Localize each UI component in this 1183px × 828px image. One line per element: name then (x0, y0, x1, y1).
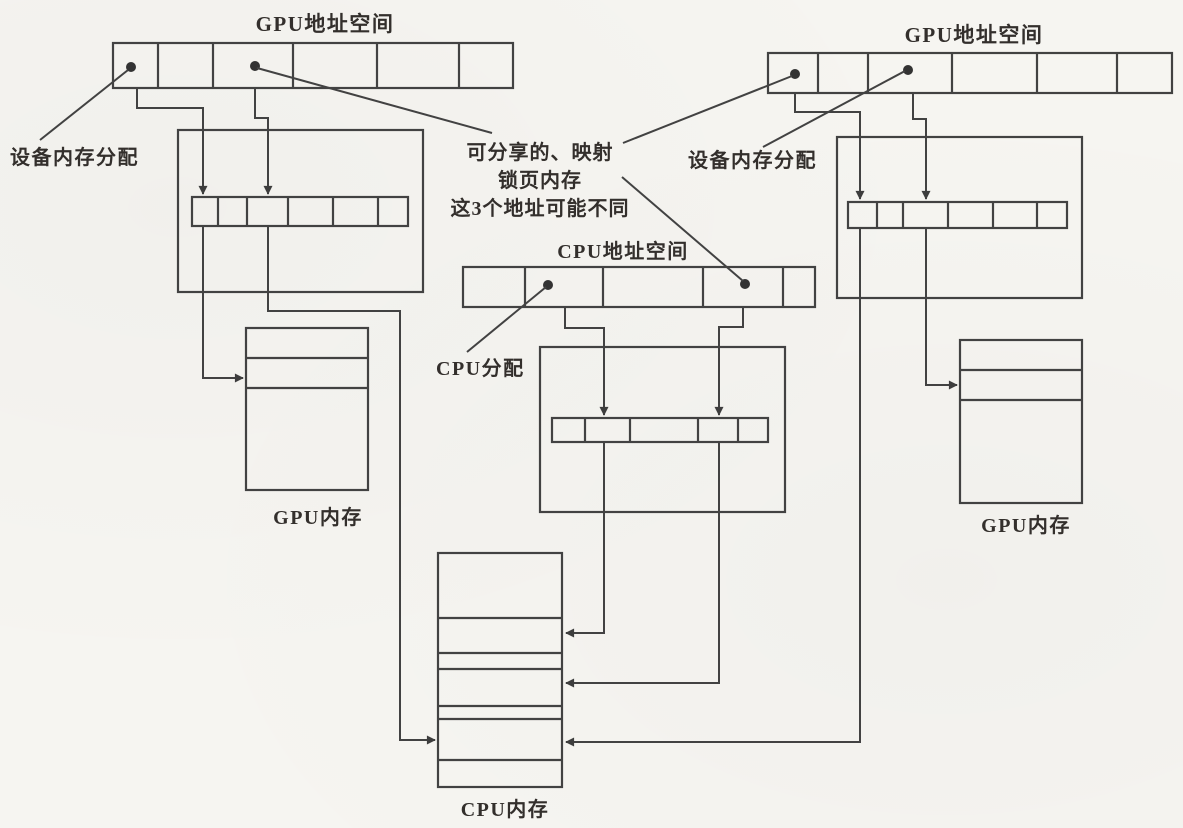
note-line-1: 可分享的、映射 (438, 139, 642, 167)
label-gpu-address-space-left: GPU地址空间 (250, 8, 400, 38)
connector-cpu-cell2-to-buffer (565, 307, 604, 415)
gpu-memory-box-right (960, 340, 1082, 503)
label-gpu-memory-right: GPU内存 (972, 509, 1080, 538)
mapping-box-left (178, 130, 423, 292)
connector-center-buffer-to-cpu-memory-row2 (566, 442, 604, 633)
label-pinned-memory-note: 可分享的、映射 锁页内存 这3个地址可能不同 (438, 139, 642, 223)
mapping-box-center (540, 347, 785, 512)
note-line-3: 这3个地址可能不同 (438, 195, 642, 223)
cpu-memory-box (438, 553, 562, 787)
buffer-bar-left (192, 197, 408, 226)
connector-left-buffer-to-gpu-memory (203, 226, 243, 378)
mapping-box-right (837, 137, 1082, 298)
cpu-address-space-bar (463, 267, 815, 307)
connector-right-cell3-to-buffer (913, 93, 926, 199)
connector-cpu-cell4-to-buffer (719, 307, 743, 415)
connector-left-buffer-to-cpu-memory (268, 226, 435, 740)
label-gpu-address-space-right: GPU地址空间 (899, 19, 1049, 49)
gpu-address-space-bar-right (768, 53, 1172, 93)
gpu-address-space-bar-left (113, 43, 513, 88)
buffer-bar-center (552, 418, 768, 442)
connector-center-buffer-to-cpu-memory-row4 (566, 442, 719, 683)
label-device-memory-allocation-right: 设备内存分配 (688, 144, 838, 173)
label-cpu-address-space: CPU地址空间 (548, 235, 698, 264)
label-cpu-memory: CPU内存 (451, 793, 559, 822)
label-gpu-memory-left: GPU内存 (264, 501, 372, 530)
gpu-memory-box-left (246, 328, 368, 490)
scanned-diagram-page: GPU地址空间 GPU地址空间 设备内存分配 设备内存分配 可分享的、映射 锁页… (0, 0, 1183, 828)
connector-left-cell3-to-buffer (255, 88, 268, 194)
label-device-memory-allocation-left: 设备内存分配 (10, 141, 160, 170)
label-cpu-allocation: CPU分配 (436, 352, 546, 381)
note-line-2: 锁页内存 (438, 167, 642, 195)
connector-right-buffer-to-gpu-memory (926, 228, 957, 385)
buffer-bar-right (848, 202, 1067, 228)
diagram-canvas (0, 0, 1183, 828)
